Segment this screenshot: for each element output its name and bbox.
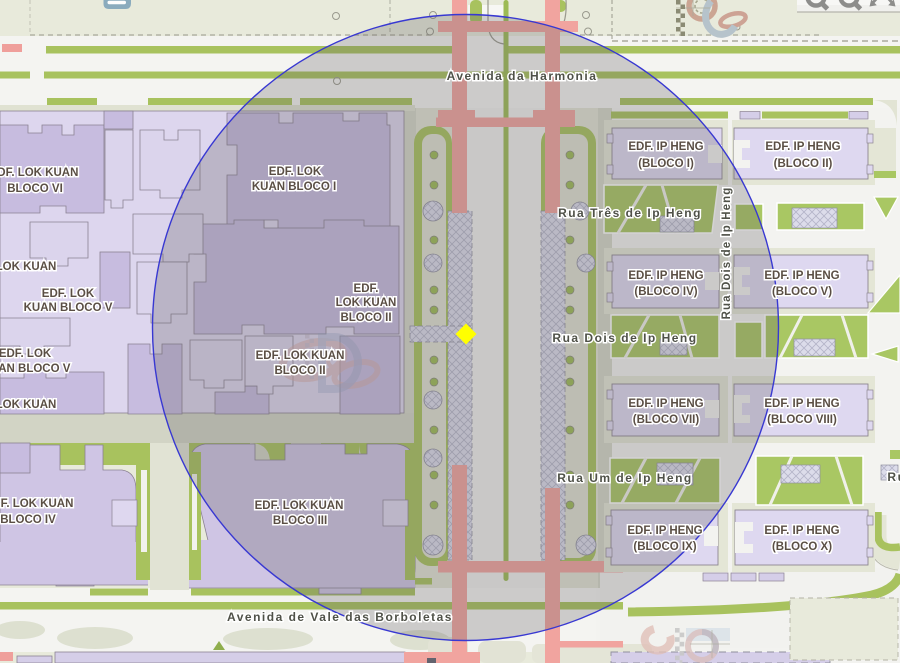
svg-text:Avenida de Vale das Borboletas: Avenida de Vale das Borboletas [227, 610, 453, 624]
svg-text:Rua Três de Ip Heng: Rua Três de Ip Heng [558, 206, 702, 220]
svg-text:LOK KUAN: LOK KUAN [0, 399, 56, 411]
svg-text:(BLOCO I): (BLOCO I) [638, 158, 694, 170]
svg-text:EDF. LOK: EDF. LOK [269, 166, 322, 178]
svg-text:EDF. LOK KUAN: EDF. LOK KUAN [256, 350, 345, 362]
svg-text:(BLOCO VII): (BLOCO VII) [633, 414, 700, 426]
svg-text:LOK KUAN: LOK KUAN [0, 261, 56, 273]
svg-text:Rua Dois de Ip Heng: Rua Dois de Ip Heng [552, 331, 697, 345]
svg-text:BLOCO II: BLOCO II [274, 365, 325, 377]
svg-text:KUAN BLOCO V: KUAN BLOCO V [24, 302, 113, 314]
svg-text:EDF. IP HENG: EDF. IP HENG [765, 141, 840, 153]
svg-text:(BLOCO II): (BLOCO II) [774, 158, 833, 170]
svg-text:EDF. LOK KUAN: EDF. LOK KUAN [0, 167, 78, 179]
svg-text:EDF. LOK: EDF. LOK [0, 348, 52, 360]
svg-text:EDF. IP HENG: EDF. IP HENG [628, 270, 703, 282]
svg-text:(BLOCO X): (BLOCO X) [772, 541, 832, 553]
svg-text:LOK KUAN: LOK KUAN [336, 297, 397, 309]
svg-text:EDF. LOK KUAN: EDF. LOK KUAN [255, 500, 344, 512]
svg-text:BLOCO III: BLOCO III [273, 515, 327, 527]
svg-text:BLOCO II: BLOCO II [340, 312, 391, 324]
svg-text:Rua Dois de Ip Heng: Rua Dois de Ip Heng [721, 187, 733, 320]
svg-text:BLOCO IV: BLOCO IV [0, 514, 56, 526]
svg-text:(BLOCO IX): (BLOCO IX) [633, 541, 696, 553]
svg-text:(BLOCO IV): (BLOCO IV) [634, 286, 697, 298]
svg-text:BLOCO VI: BLOCO VI [7, 183, 63, 195]
svg-text:EDF. LOK KUAN: EDF. LOK KUAN [0, 498, 73, 510]
svg-text:EDF. IP HENG: EDF. IP HENG [764, 270, 839, 282]
svg-text:Rua Um de Ip Heng: Rua Um de Ip Heng [557, 471, 693, 485]
svg-text:EDF. IP HENG: EDF. IP HENG [627, 525, 702, 537]
svg-text:EDF. IP HENG: EDF. IP HENG [628, 141, 703, 153]
svg-text:EDF. LOK: EDF. LOK [42, 288, 95, 300]
svg-text:EDF. IP HENG: EDF. IP HENG [628, 398, 703, 410]
svg-text:(BLOCO VIII): (BLOCO VIII) [767, 414, 837, 426]
svg-text:EDF. IP HENG: EDF. IP HENG [764, 398, 839, 410]
svg-text:KUAN BLOCO V: KUAN BLOCO V [0, 363, 71, 375]
svg-text:EDF. IP HENG: EDF. IP HENG [764, 525, 839, 537]
svg-text:(BLOCO V): (BLOCO V) [772, 286, 832, 298]
svg-text:EDF.: EDF. [354, 283, 379, 295]
svg-text:KUAN BLOCO I: KUAN BLOCO I [252, 181, 336, 193]
svg-text:Avenida da Harmonia: Avenida da Harmonia [447, 69, 598, 83]
svg-text:Rua: Rua [887, 470, 900, 484]
